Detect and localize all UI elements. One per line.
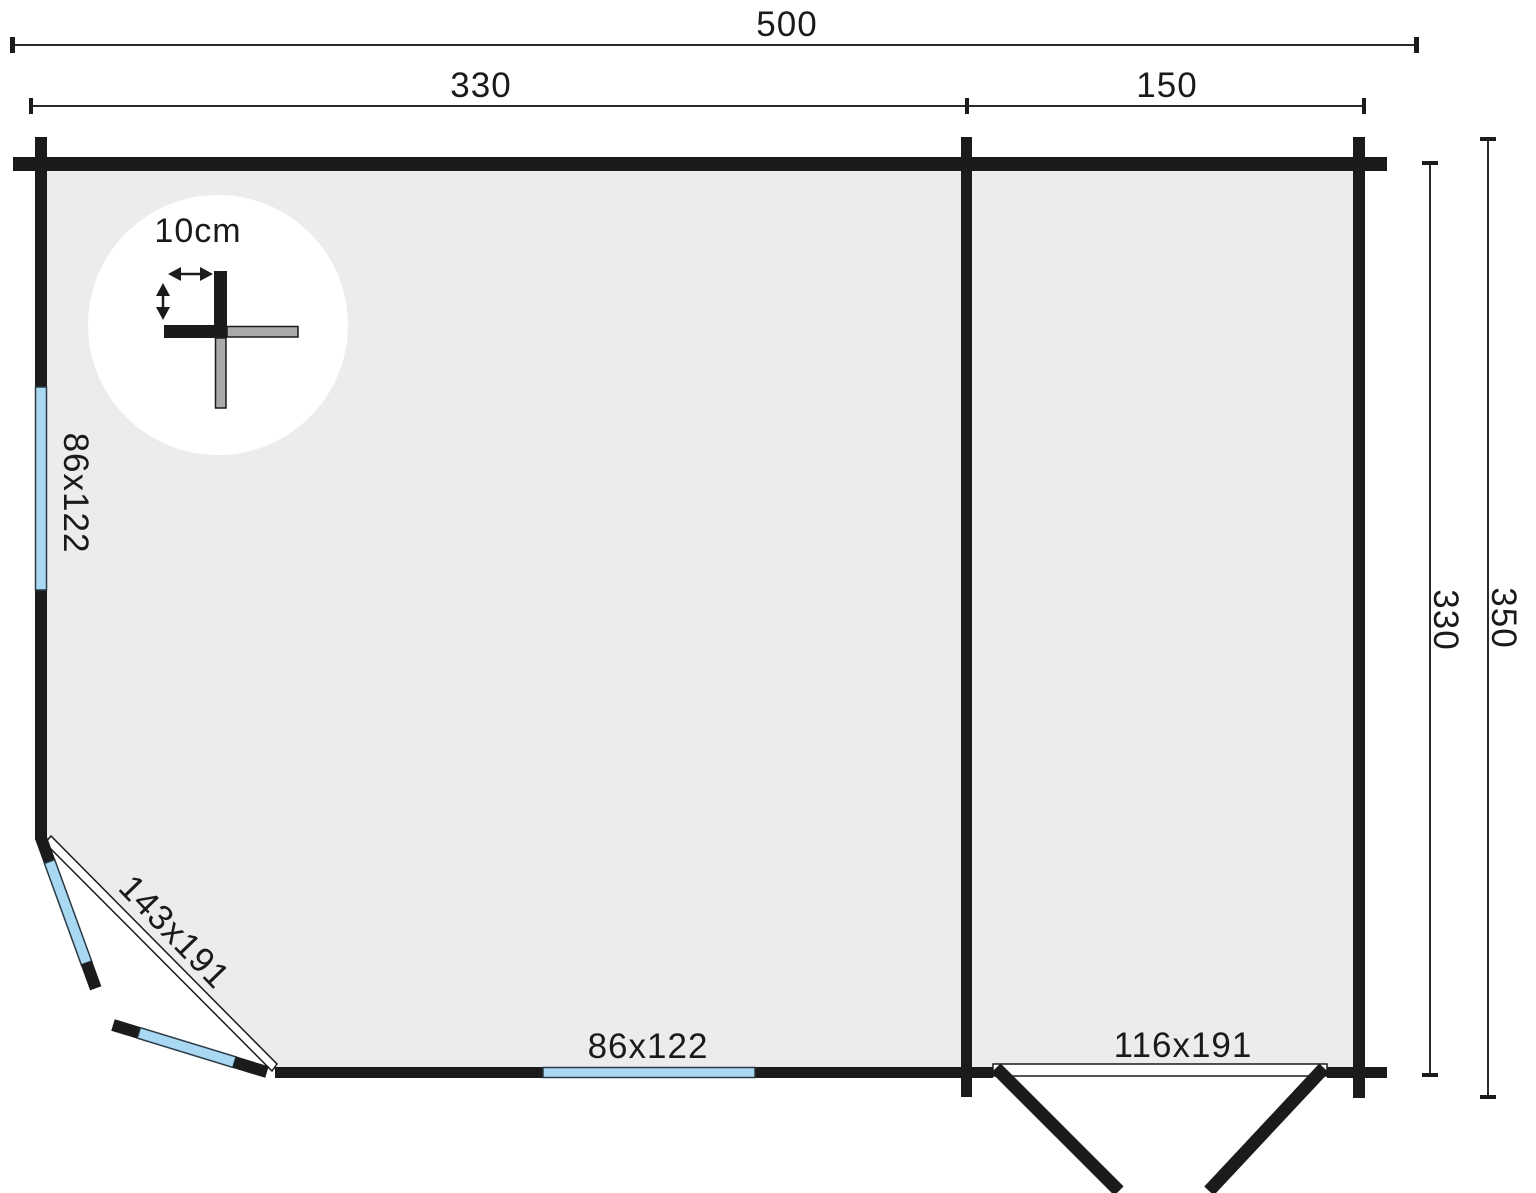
log-black-horizontal (164, 325, 227, 338)
front-window (543, 1068, 755, 1078)
double-door-label: 116x191 (1114, 1026, 1253, 1065)
bottom-wall-right (1327, 1067, 1387, 1078)
floor-plan-drawing: 10cm 500 330 (0, 0, 1536, 1193)
partition-wall (961, 137, 972, 1097)
dim-label-depth-outer: 350 (1484, 587, 1523, 648)
front-window-label: 86x122 (588, 1027, 709, 1066)
log-gray-horizontal (227, 327, 298, 338)
bottom-wall-left (275, 1067, 543, 1078)
floor-plan-page: 10cm 500 330 (0, 0, 1536, 1193)
bottom-wall-middle (755, 1067, 993, 1078)
left-window (36, 387, 47, 590)
left-wall-lower (35, 590, 47, 840)
right-wall (1353, 137, 1365, 1098)
top-wall (13, 157, 1387, 171)
wall-thickness-label: 10cm (154, 212, 241, 250)
dim-label-front-left: 330 (450, 66, 511, 105)
dim-label-depth-inner: 330 (1426, 589, 1465, 650)
dim-label-front-right: 150 (1136, 66, 1197, 105)
log-gray-vertical (216, 338, 227, 408)
double-door-threshold (993, 1064, 1327, 1076)
left-window-label: 86x122 (56, 433, 95, 554)
left-wall-upper (35, 137, 47, 387)
dim-label-total-width: 500 (756, 5, 817, 44)
